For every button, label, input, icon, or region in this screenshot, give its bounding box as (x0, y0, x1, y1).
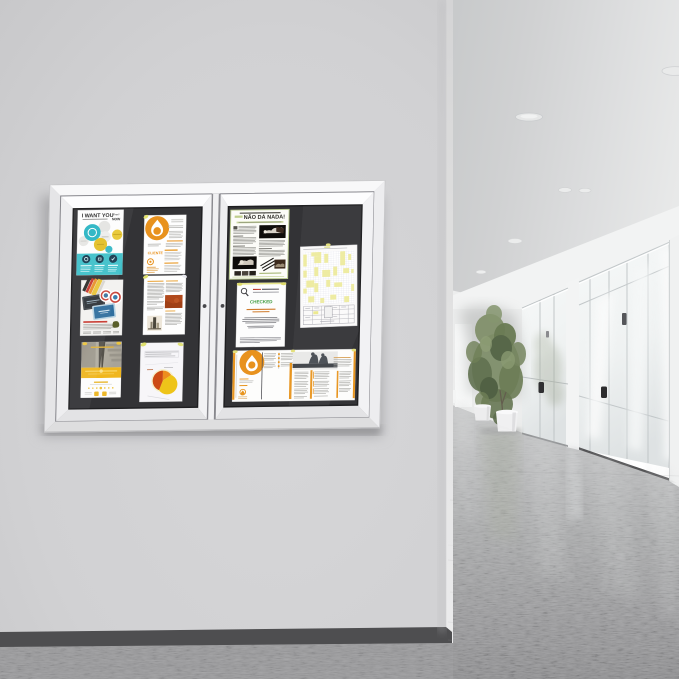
svg-text:CLIENTE: CLIENTE (148, 251, 164, 255)
svg-text:NÃO DÁ NADA!: NÃO DÁ NADA! (244, 213, 286, 221)
svg-text:CHECKED: CHECKED (250, 299, 273, 304)
